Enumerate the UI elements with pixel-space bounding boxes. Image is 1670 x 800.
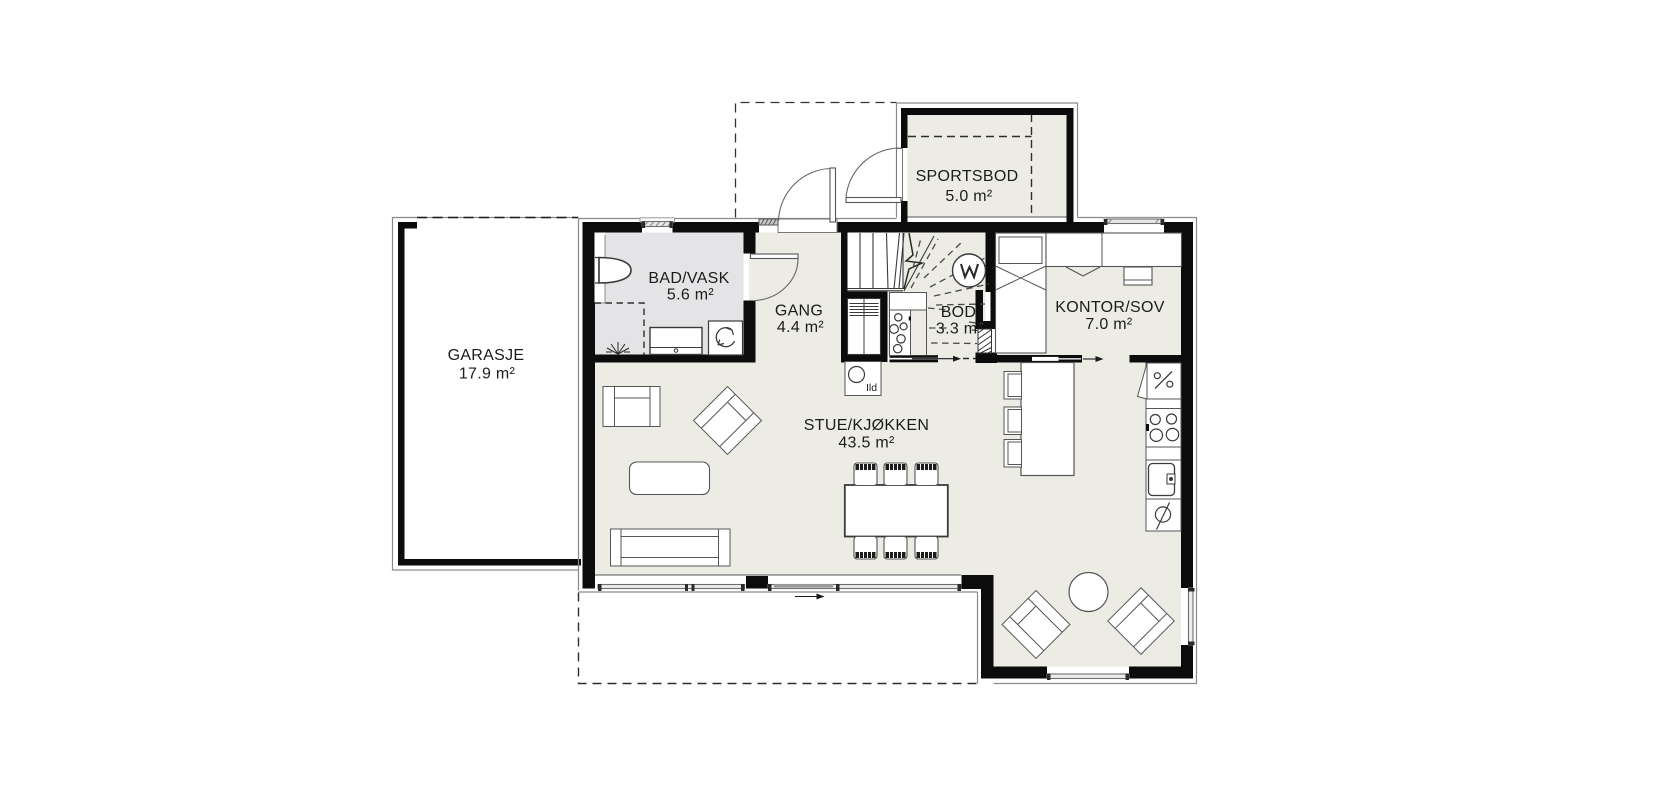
svg-text:GANG: GANG (775, 303, 823, 320)
svg-text:5.6 m²: 5.6 m² (667, 287, 715, 304)
svg-text:3.3 m²: 3.3 m² (936, 321, 984, 338)
svg-text:GARASJE: GARASJE (448, 347, 525, 364)
svg-text:Ild: Ild (866, 382, 877, 394)
svg-text:STUE/KJØKKEN: STUE/KJØKKEN (804, 417, 929, 434)
svg-text:5.0 m²: 5.0 m² (945, 188, 993, 205)
svg-text:7.0 m²: 7.0 m² (1085, 316, 1133, 333)
svg-text:BAD/VASK: BAD/VASK (648, 270, 729, 287)
svg-text:KONTOR/SOV: KONTOR/SOV (1055, 299, 1164, 316)
svg-text:17.9 m²: 17.9 m² (459, 366, 516, 383)
svg-text:BOD: BOD (941, 304, 977, 321)
svg-text:SPORTSBOD: SPORTSBOD (916, 168, 1019, 185)
svg-text:43.5 m²: 43.5 m² (838, 435, 895, 452)
svg-text:4.4 m²: 4.4 m² (777, 319, 825, 336)
